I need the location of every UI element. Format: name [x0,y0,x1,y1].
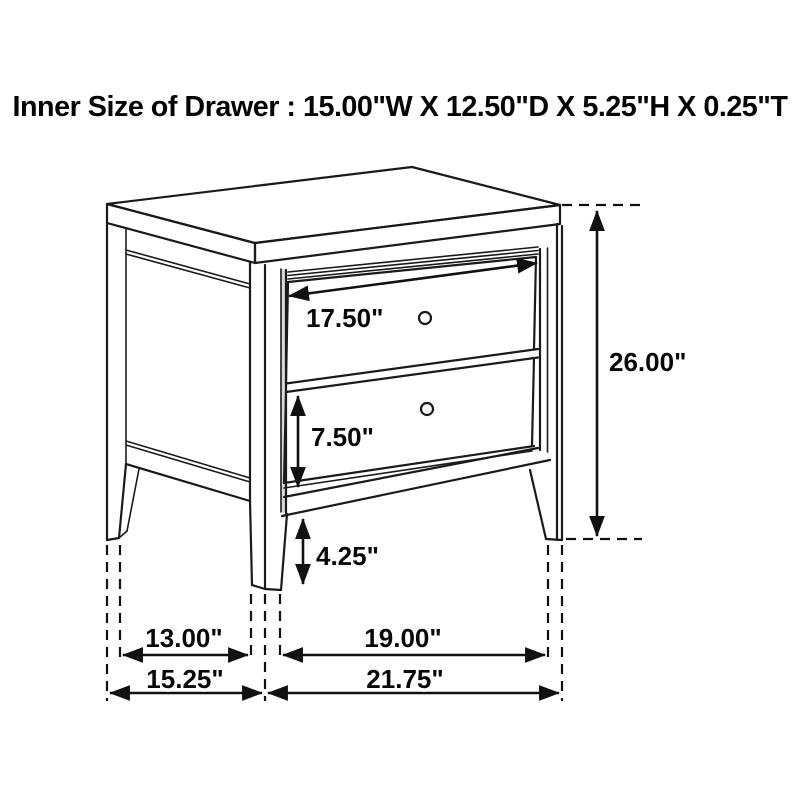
dimension-drawer-width: 17.50" [289,263,537,333]
overall-width-label: 21.75" [366,664,443,694]
side-panel [107,223,250,540]
drawer-height-label: 7.50" [311,422,374,452]
side-leg-span-label: 13.00" [145,623,222,653]
dimension-side-leg-span: 13.00" [123,623,248,655]
table-top [107,167,560,263]
page-title: Inner Size of Drawer : 15.00"W X 12.50"D… [13,91,789,123]
dimension-front-leg-span: 19.00" [283,623,545,655]
front-leg-span-label: 19.00" [364,623,441,653]
top-reveal-strip [288,247,538,279]
back-left-leg [107,464,139,540]
drawer-bottom-knob [421,403,433,415]
dimension-overall-width: 21.75" [268,664,559,694]
dimension-overall-depth: 15.25" [110,664,262,694]
overall-depth-label: 15.25" [146,664,223,694]
nightstand [107,167,562,590]
overall-height-label: 26.00" [609,347,686,377]
front-left-post [250,262,286,589]
leg-clearance-label: 4.25" [316,541,379,571]
front-right-post [540,224,562,540]
drawer-top-knob [419,312,431,324]
dimension-diagram-page: Inner Size of Drawer : 15.00"W X 12.50"D… [0,0,800,800]
nightstand-dimension-drawing: Inner Size of Drawer : 15.00"W X 12.50"D… [0,0,800,800]
dimension-drawer-height: 7.50" [298,396,374,487]
dimension-overall-height: 26.00" [597,211,686,536]
dimension-leg-clearance: 4.25" [303,519,379,584]
front-left-leg [252,514,287,590]
drawer-width-label: 17.50" [306,303,383,333]
